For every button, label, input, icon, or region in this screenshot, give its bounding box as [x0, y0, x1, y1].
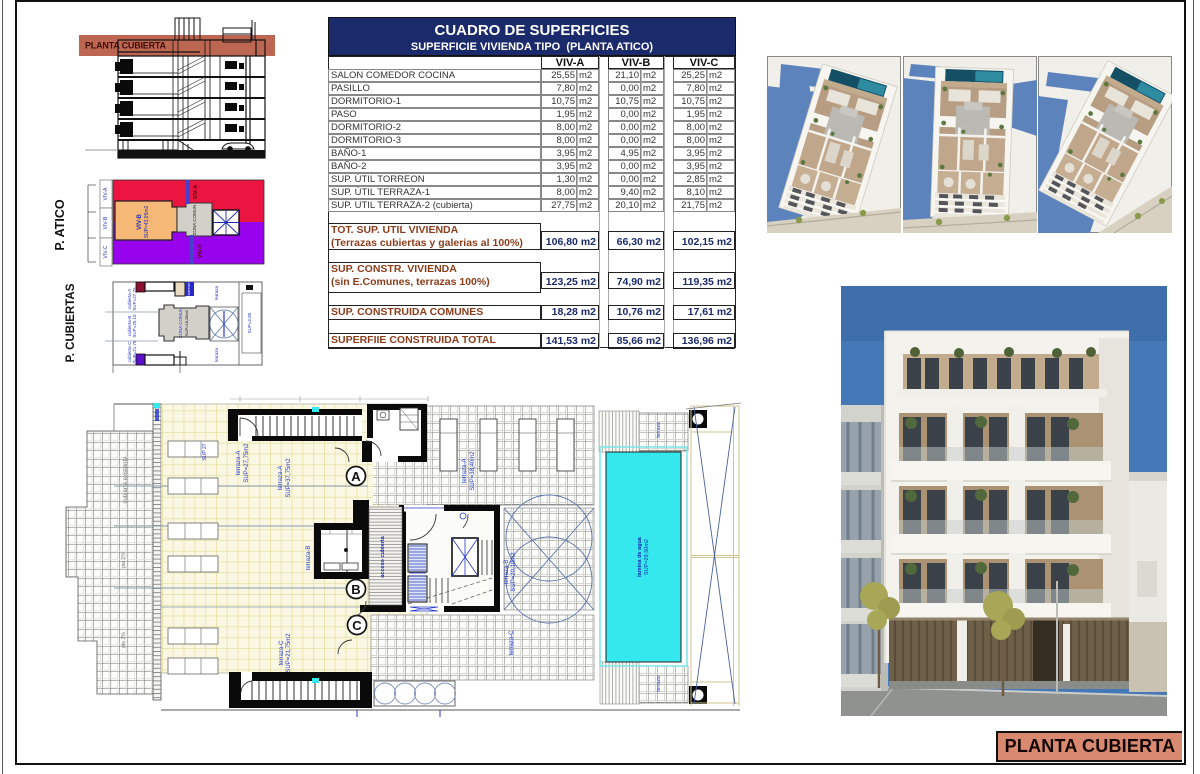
svg-text:terraza: terraza — [214, 348, 219, 363]
svg-text:terraza-B: terraza-B — [504, 560, 510, 585]
svg-text:VIV-A: VIV-A — [103, 187, 109, 200]
svg-text:VIV-B: VIV-B — [137, 213, 143, 229]
svg-text:SUP 27: SUP 27 — [202, 443, 208, 460]
svg-text:B: B — [351, 582, 360, 597]
svg-text:terraza-A: terraza-A — [462, 459, 468, 484]
svg-text:terraza: terraza — [656, 422, 662, 438]
svg-text:A: A — [351, 469, 361, 484]
svg-text:SUP=2,85: SUP=2,85 — [247, 312, 252, 333]
svg-text:terraza-B: terraza-B — [306, 546, 312, 571]
svg-text:terraza: terraza — [656, 676, 662, 692]
svg-text:ZONA COMUN: ZONA COMUN — [192, 205, 197, 236]
svg-text:SUP=27,75: SUP=27,75 — [132, 287, 137, 311]
svg-text:terraza-C: terraza-C — [279, 640, 285, 666]
svg-text:SUP=18,28m2: SUP=18,28m2 — [184, 309, 189, 336]
svg-text:lamina de agua: lamina de agua — [637, 536, 643, 577]
svg-text:P. ATICO: P. ATICO — [53, 199, 67, 250]
svg-text:SUP=37,75m2: SUP=37,75m2 — [286, 458, 292, 498]
svg-text:SUP=20,10m2: SUP=20,10m2 — [511, 552, 517, 592]
svg-text:cubierta existente: cubierta existente — [123, 456, 129, 504]
svg-text:terraza-C: terraza-C — [509, 630, 515, 656]
svg-text:pte 2%: pte 2% — [121, 552, 127, 568]
svg-text:SUP=29,50m2: SUP=29,50m2 — [644, 539, 650, 575]
svg-text:VIV-B: VIV-B — [103, 216, 109, 229]
svg-text:terraza-A: terraza-A — [278, 466, 284, 491]
svg-text:C: C — [352, 618, 362, 633]
svg-text:VIV-C: VIV-C — [198, 244, 204, 258]
svg-text:terraza-A: terraza-A — [236, 451, 242, 476]
svg-text:terraza: terraza — [214, 286, 219, 301]
svg-text:SUP=38,40m2: SUP=38,40m2 — [470, 451, 476, 491]
svg-text:ZONA COMUN: ZONA COMUN — [178, 308, 183, 339]
svg-text:VIV-A: VIV-A — [193, 185, 199, 199]
svg-text:torreon: torreon — [186, 283, 191, 296]
svg-text:pte 2%: pte 2% — [121, 632, 127, 648]
svg-text:PLANTA CUBIERTA: PLANTA CUBIERTA — [85, 41, 167, 51]
svg-text:SUP=20,10: SUP=20,10 — [132, 314, 137, 338]
svg-text:acceso cubierta: acceso cubierta — [380, 535, 386, 578]
svg-text:P. CUBIERTAS: P. CUBIERTAS — [65, 283, 77, 362]
svg-text:VIV-C: VIV-C — [103, 245, 109, 258]
svg-text:SUP=43,95m2: SUP=43,95m2 — [144, 205, 150, 238]
svg-text:SUP=27,75m2: SUP=27,75m2 — [244, 443, 250, 483]
svg-text:SUP=21,75m2: SUP=21,75m2 — [286, 633, 292, 673]
svg-text:SUP=21,75: SUP=21,75 — [132, 340, 137, 364]
